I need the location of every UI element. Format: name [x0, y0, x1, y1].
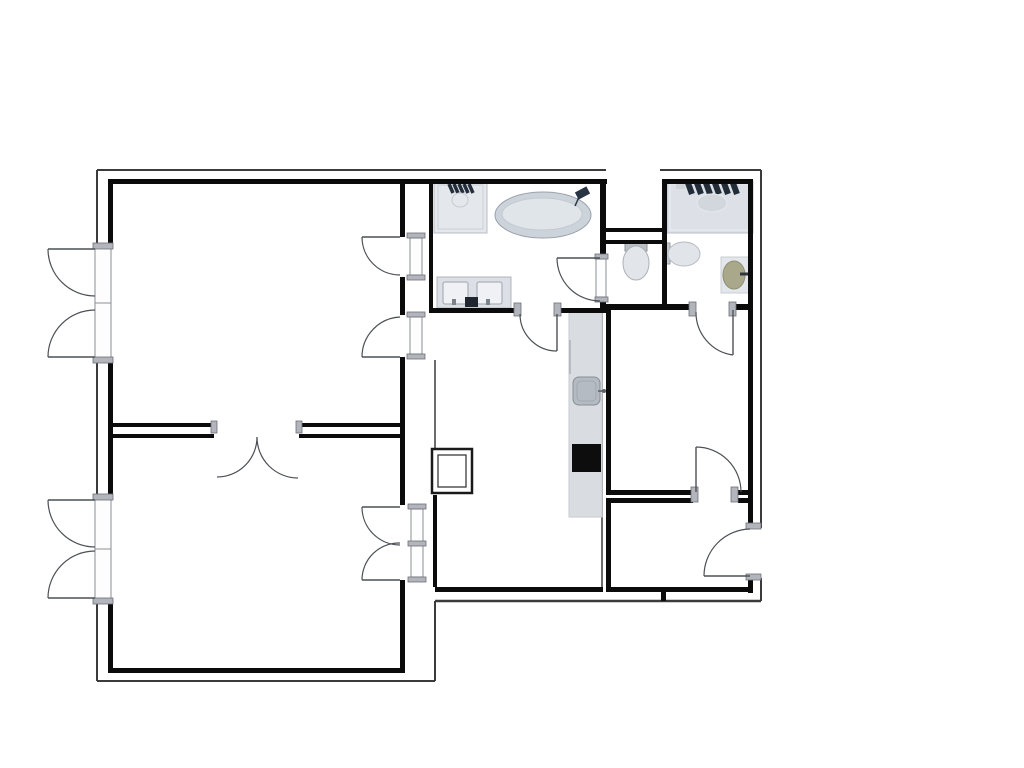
floor-plan [0, 0, 1024, 768]
wall-left-middle [108, 360, 113, 497]
wall-stub [661, 592, 666, 601]
wall-entry-top-b [738, 498, 753, 503]
door-jamb-cap [407, 275, 425, 280]
door-jamb-cap [407, 354, 425, 359]
bathroom2-towels [733, 183, 737, 194]
wall-entry-bottom [606, 587, 753, 592]
wall-bedroom-top-a [604, 304, 696, 310]
door-jamb-cap [408, 577, 426, 582]
wall-bathroom-bottom-b [557, 308, 607, 313]
vanity-faucet-right [486, 299, 490, 305]
wall-rooms-right-3 [400, 357, 405, 505]
window-jamb-cap [93, 598, 113, 604]
wall-dining-bottom [435, 587, 603, 592]
bathroom2-towels [715, 183, 719, 194]
wall-right-upper [748, 179, 753, 528]
plan-background [0, 0, 1024, 768]
wall-bedroom-bottom-a [606, 490, 693, 495]
door-jamb-cap [746, 523, 761, 529]
bathroom2-tray [676, 184, 685, 189]
bathroom2-towels [697, 183, 701, 194]
wall-divider-bot-b [299, 434, 403, 438]
wall-bedroom-bottom-b [738, 490, 753, 495]
bathroom2-sink [697, 194, 727, 212]
bathroom2-towels [706, 183, 710, 194]
wall-bathroom-bottom-a [429, 308, 519, 313]
window-jamb-cap [93, 357, 113, 363]
bathroom2-towels [724, 183, 728, 194]
wall-entry-left [606, 503, 611, 592]
door-frame [410, 317, 422, 354]
wc-toilet-bowl [623, 246, 649, 280]
wall-left-upper [108, 179, 113, 246]
wall-left-lower [108, 601, 113, 673]
wall-divider-bot-a [108, 434, 214, 438]
wall-rooms-right-4 [400, 580, 405, 673]
door-frame [410, 238, 422, 275]
door-jamb-cap [407, 312, 425, 317]
kitchen-faucet-knob [602, 389, 606, 393]
cooktop [572, 444, 601, 472]
kitchen-counter [569, 311, 602, 517]
door-jamb-cap [408, 541, 426, 546]
door-frame [596, 259, 606, 297]
window-jamb-cap [93, 494, 113, 500]
wall-divider-top-b [299, 423, 403, 427]
vanity-faucet-left [452, 299, 456, 305]
bathtub-inner [502, 198, 582, 230]
wall-wc-top [604, 240, 664, 244]
wall-rooms-right-1 [400, 179, 405, 237]
wall-lightwell-bottom [604, 228, 664, 232]
wall-bedroom-left [606, 310, 611, 495]
wall-bathroom-right-a [600, 179, 606, 260]
door-jamb-cap [731, 487, 738, 502]
wall-divider-top-a [108, 423, 214, 427]
wall-top-right-room [662, 179, 753, 184]
door-jamb-cap [407, 233, 425, 238]
door-jamb-cap [408, 504, 426, 509]
window-jamb-cap [93, 243, 113, 249]
door-jamb-cap [746, 574, 761, 580]
door-jamb-cap [691, 487, 698, 502]
bathroom2-toilet-bowl [668, 242, 700, 266]
wall-top-center [404, 179, 607, 184]
wall-entry-top-a [606, 498, 693, 503]
bathroom2-towels [688, 183, 692, 194]
wall-dining-left [433, 495, 437, 587]
floor-plan-drawing [0, 0, 1024, 768]
wall-bottom-left-room [108, 668, 405, 673]
vanity-accessory [465, 297, 478, 307]
wall-rooms-right-2 [400, 277, 405, 315]
door-jamb-cap [211, 421, 217, 433]
wall-top-left-room [108, 179, 405, 184]
door-jamb-cap [296, 421, 302, 433]
door-jamb-cap [689, 302, 696, 316]
wall-wc-right [662, 179, 667, 310]
wall-bathroom-left [429, 179, 433, 313]
